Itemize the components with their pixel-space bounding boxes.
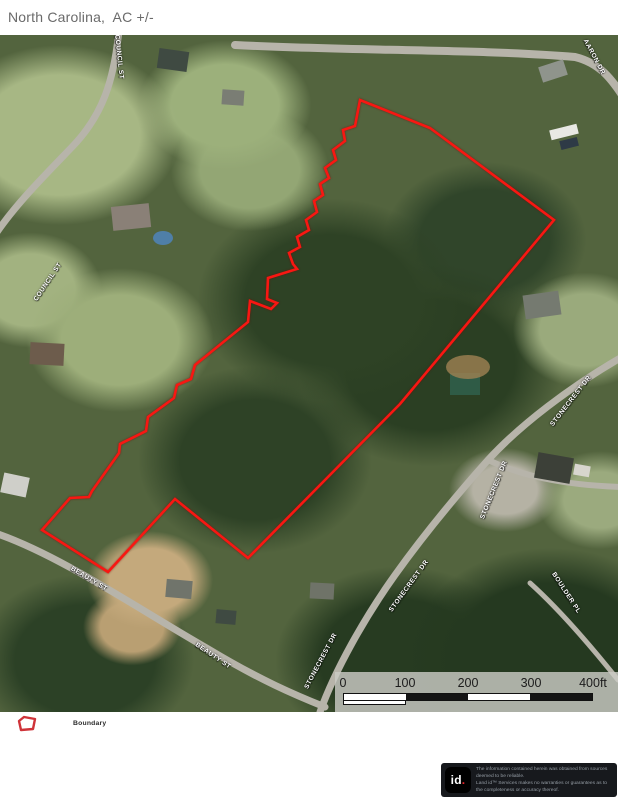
scale-subdivision — [343, 701, 406, 705]
road-beauty-st — [0, 533, 325, 707]
road-council-st — [0, 35, 119, 235]
disclaimer-line-1: The information contained herein was obt… — [476, 767, 607, 779]
credit-badge: id. The information contained herein was… — [441, 763, 617, 797]
road-stonecrest-dr — [320, 357, 618, 712]
scale-label: 300 — [521, 676, 542, 690]
scale-segment — [406, 694, 468, 700]
scale-segment — [344, 694, 406, 700]
page-title: North Carolina, AC +/- — [8, 9, 154, 25]
disclaimer-line-2: Land id™ Services makes no warranties or… — [476, 781, 607, 793]
building-footprints — [0, 48, 591, 625]
land-id-logo: id. — [445, 767, 471, 793]
map-overlay-svg — [0, 35, 618, 712]
legend: Boundary — [0, 712, 440, 742]
map-report-page: North Carolina, AC +/- — [0, 0, 618, 800]
road-boulder-pl — [530, 583, 618, 680]
scale-label: 0 — [340, 676, 347, 690]
disclaimer-text: The information contained herein was obt… — [476, 766, 613, 794]
title-bar: North Carolina, AC +/- — [0, 0, 618, 35]
scale-label: 100 — [395, 676, 416, 690]
boundary-legend-icon — [15, 715, 39, 733]
scale-bar: 0100200300400ft — [335, 672, 618, 712]
aerial-map-canvas: COUNCIL STCOUNCIL STAARON DRSTONECREST D… — [0, 35, 618, 712]
scale-label: 400ft — [579, 676, 607, 690]
boundary-polygon — [42, 100, 554, 572]
scale-segment — [530, 694, 592, 700]
scale-label: 200 — [458, 676, 479, 690]
logo-red-dot: . — [462, 773, 466, 787]
legend-boundary-label: Boundary — [73, 720, 106, 727]
scale-segment — [468, 694, 530, 700]
scale-segments — [343, 693, 593, 701]
